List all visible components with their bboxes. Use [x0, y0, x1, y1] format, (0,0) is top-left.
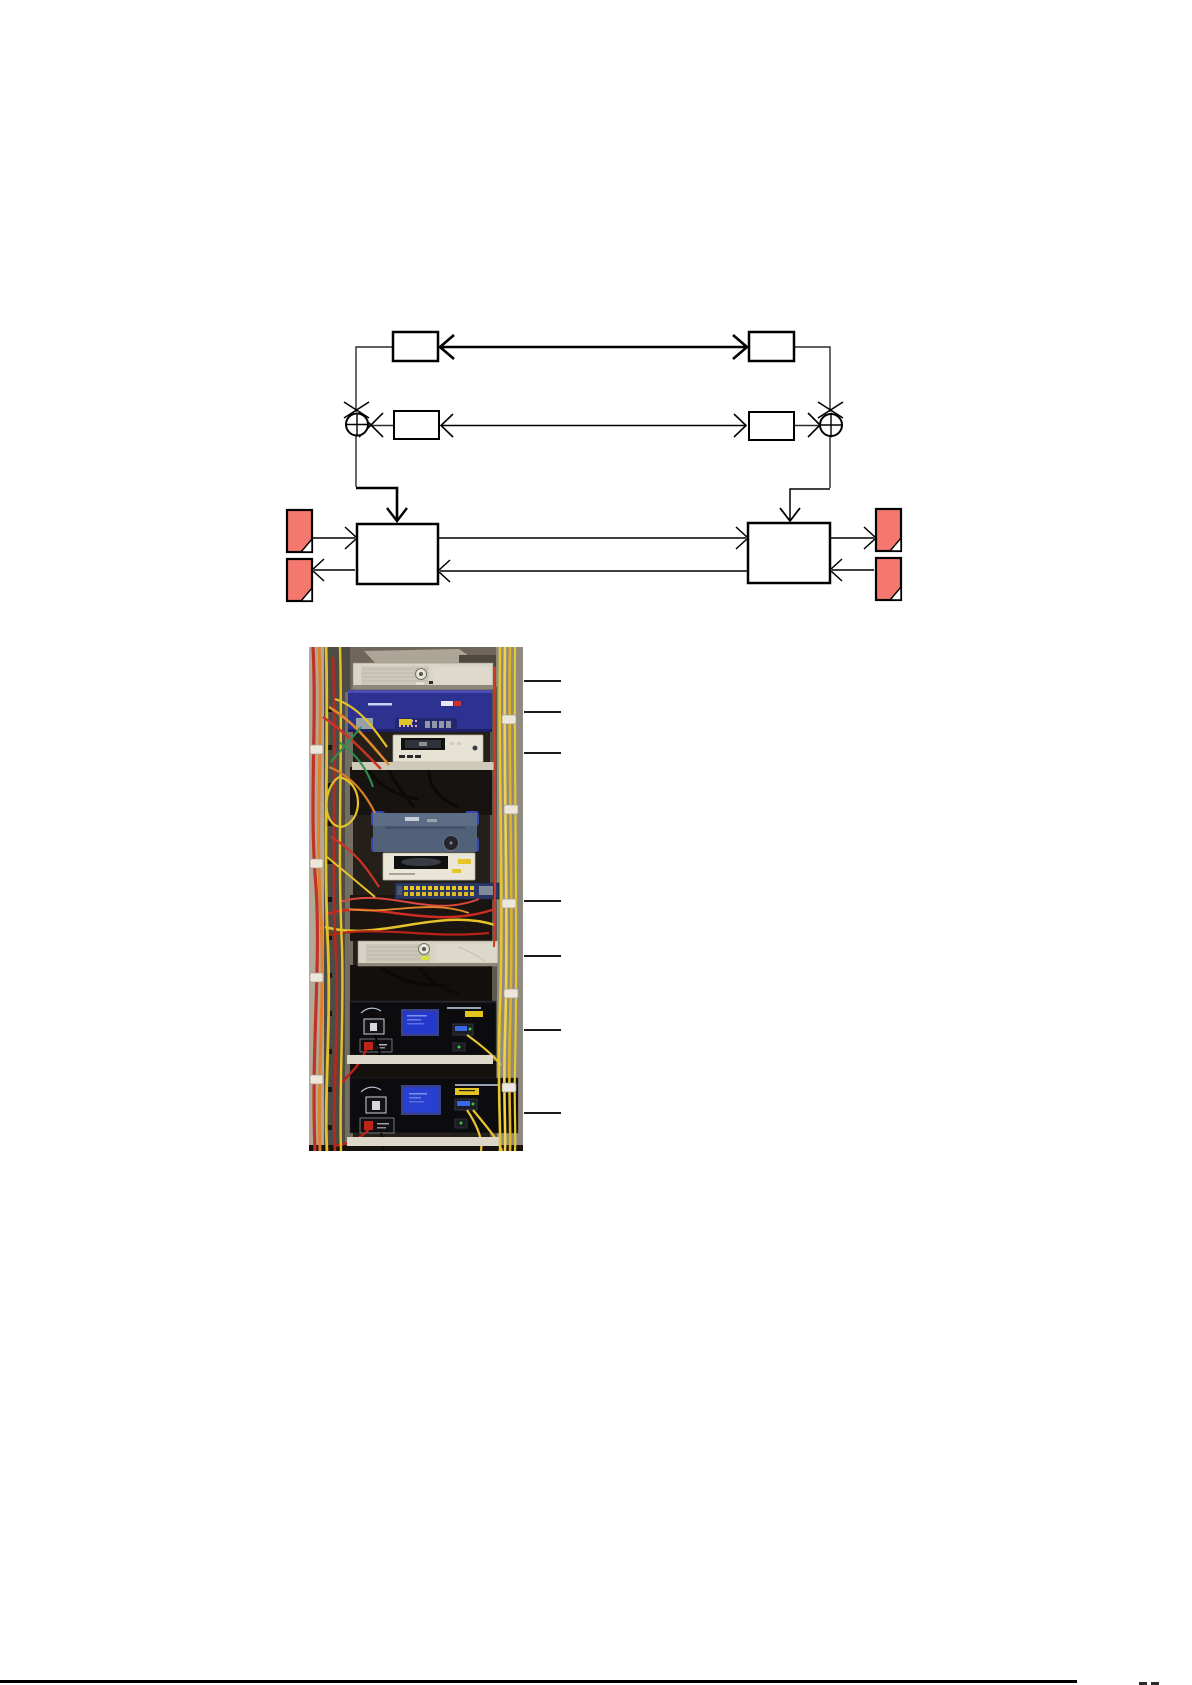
- callout-line-4: [524, 900, 561, 902]
- document-icon-top-right: [876, 509, 901, 551]
- node-box-top-right: [749, 332, 794, 361]
- rack-tray: [347, 1055, 493, 1064]
- callout-line-2: [524, 711, 561, 713]
- adder-node-left: [346, 414, 368, 436]
- node-box-bottom-right: [748, 523, 830, 583]
- rack-instrument-mid: [383, 853, 475, 880]
- node-box-bottom-left: [357, 524, 438, 584]
- callout-line-7: [524, 1112, 561, 1114]
- callout-line-5: [524, 955, 561, 957]
- blue-device-label: [368, 703, 392, 706]
- link-bottom-return: [438, 560, 748, 582]
- document-icon-bottom-right: [876, 558, 901, 600]
- node-box-top-left: [393, 332, 438, 361]
- rack-photo: [309, 647, 523, 1151]
- warning-label: [465, 1011, 483, 1017]
- adder-node-right: [820, 414, 842, 436]
- adder-output-right: [780, 489, 830, 521]
- rack-server-mid: [358, 941, 498, 966]
- document-page: [0, 0, 1192, 1685]
- document-icon-top-left: [287, 510, 312, 552]
- lcd-screen: [404, 1012, 437, 1034]
- warning-label: [455, 1088, 479, 1095]
- callout-line-3: [524, 752, 561, 754]
- link-bottom-forward: [438, 527, 748, 549]
- rack-switch: [395, 883, 499, 899]
- rack-photo-image: [309, 647, 523, 1151]
- blue-device-logo: [441, 701, 453, 706]
- node-box-mid-left: [394, 411, 439, 439]
- document-icon-bottom-left: [287, 559, 312, 601]
- rack-blue-device: [348, 690, 492, 732]
- lcd-screen: [404, 1088, 439, 1113]
- node-box-mid-right: [749, 412, 794, 440]
- footer-rule: [0, 1680, 1077, 1683]
- callout-line-6: [524, 1029, 561, 1031]
- rack-server-top: [353, 663, 493, 689]
- adder-output-left: [356, 488, 407, 521]
- rack-tray: [347, 1137, 499, 1146]
- rack-shelf: [352, 762, 494, 770]
- figure-block-diagram: [270, 300, 920, 620]
- rack-black-unit-bottom: [335, 1078, 518, 1151]
- link-top-bidirectional: [440, 335, 747, 359]
- callout-line-1: [524, 680, 561, 682]
- link-mid-bidirectional: [441, 414, 746, 437]
- yellow-label: [399, 719, 412, 725]
- rack-test-device: [371, 811, 479, 852]
